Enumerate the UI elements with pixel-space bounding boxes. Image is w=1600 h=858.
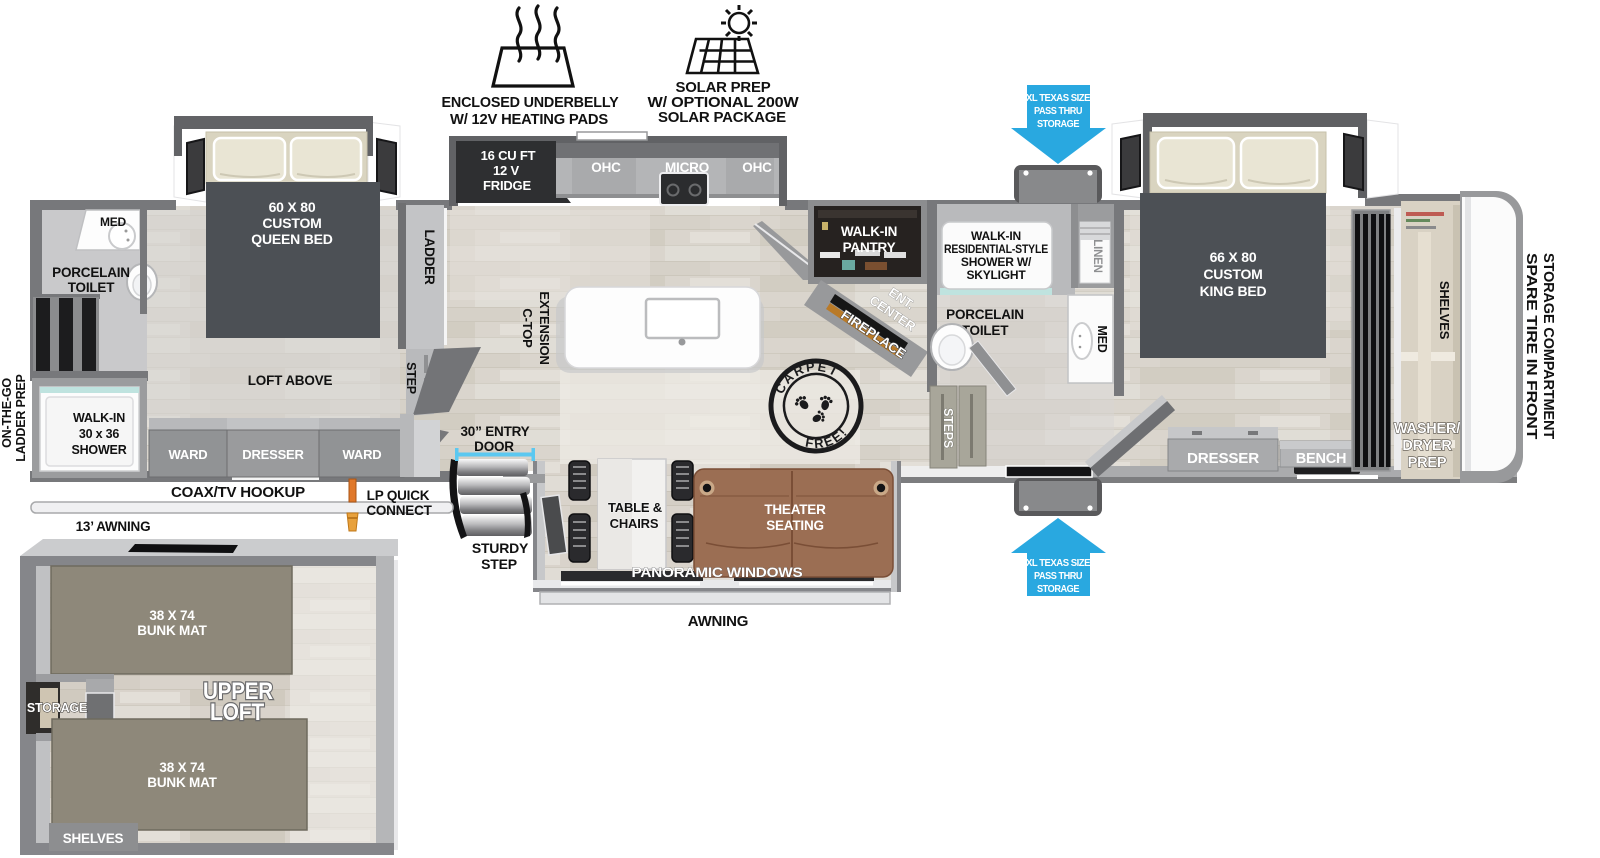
svg-text:WALK-IN: WALK-IN — [73, 411, 125, 425]
svg-text:PORCELAIN: PORCELAIN — [946, 307, 1024, 322]
svg-text:RESIDENTIAL-STYLE: RESIDENTIAL-STYLE — [944, 242, 1048, 256]
svg-text:SPARE TIRE IN FRONT: SPARE TIRE IN FRONT — [1523, 253, 1540, 439]
svg-text:SHELVES: SHELVES — [63, 831, 124, 846]
svg-text:WALK-IN: WALK-IN — [841, 224, 897, 239]
svg-text:AWNING: AWNING — [688, 613, 748, 630]
svg-text:SHOWER W/: SHOWER W/ — [961, 255, 1032, 269]
svg-text:TOILET: TOILET — [68, 280, 116, 295]
svg-text:DRESSER: DRESSER — [1187, 451, 1260, 467]
svg-text:66 X 80: 66 X 80 — [1210, 249, 1257, 265]
svg-text:BENCH: BENCH — [1296, 451, 1347, 467]
svg-text:PASS THRU: PASS THRU — [1034, 106, 1082, 117]
svg-text:STORAGE: STORAGE — [27, 701, 87, 715]
svg-text:OHC: OHC — [591, 160, 621, 175]
svg-text:30 x 36: 30 x 36 — [79, 427, 120, 441]
svg-text:38 X 74: 38 X 74 — [149, 608, 195, 623]
svg-text:QUEEN BED: QUEEN BED — [251, 231, 333, 247]
svg-text:WARD: WARD — [169, 447, 208, 462]
svg-text:WASHER/: WASHER/ — [1394, 421, 1460, 437]
svg-text:CHAIRS: CHAIRS — [610, 516, 659, 531]
svg-text:MED: MED — [100, 215, 127, 229]
svg-text:STEP: STEP — [481, 556, 517, 572]
svg-text:WARD: WARD — [343, 447, 382, 462]
svg-text:XL TEXAS SIZE: XL TEXAS SIZE — [1026, 558, 1091, 569]
svg-text:C-TOP: C-TOP — [520, 308, 535, 348]
svg-text:LADDER PREP: LADDER PREP — [14, 374, 28, 461]
svg-text:OHC: OHC — [742, 160, 772, 175]
svg-text:DOOR: DOOR — [474, 439, 514, 454]
svg-text:TABLE &: TABLE & — [608, 500, 662, 515]
svg-text:STEP: STEP — [404, 362, 418, 394]
svg-text:ENCLOSED UNDERBELLY: ENCLOSED UNDERBELLY — [442, 94, 619, 111]
svg-text:FRIDGE: FRIDGE — [483, 178, 531, 193]
svg-text:PASS THRU: PASS THRU — [1034, 571, 1082, 582]
svg-text:EXTENSION: EXTENSION — [537, 291, 552, 364]
svg-text:STEPS: STEPS — [941, 408, 955, 448]
svg-text:CUSTOM: CUSTOM — [1203, 266, 1262, 282]
svg-text:LINEN: LINEN — [1091, 239, 1103, 273]
svg-text:SEATING: SEATING — [766, 518, 824, 533]
svg-text:SHELVES: SHELVES — [1437, 281, 1452, 340]
svg-text:STURDY: STURDY — [472, 540, 529, 556]
svg-text:60 X 80: 60 X 80 — [269, 199, 316, 215]
svg-text:16 CU FT: 16 CU FT — [481, 148, 536, 163]
svg-text:COAX/TV HOOKUP: COAX/TV HOOKUP — [171, 485, 306, 501]
svg-text:30” ENTRY: 30” ENTRY — [461, 424, 530, 439]
svg-text:PANORAMIC WINDOWS: PANORAMIC WINDOWS — [632, 565, 803, 580]
svg-text:XL TEXAS SIZE: XL TEXAS SIZE — [1026, 93, 1091, 104]
svg-text:LOFT: LOFT — [210, 699, 264, 726]
svg-text:W/ 12V HEATING PADS: W/ 12V HEATING PADS — [450, 111, 608, 128]
svg-text:PORCELAIN: PORCELAIN — [52, 265, 130, 280]
svg-text:SKYLIGHT: SKYLIGHT — [966, 268, 1026, 282]
svg-text:KING BED: KING BED — [1200, 283, 1267, 299]
svg-text:STORAGE: STORAGE — [1037, 584, 1080, 595]
svg-text:13’ AWNING: 13’ AWNING — [76, 519, 151, 534]
svg-text:THEATER: THEATER — [764, 502, 826, 517]
svg-text:BUNK MAT: BUNK MAT — [147, 775, 217, 790]
svg-text:WALK-IN: WALK-IN — [971, 229, 1021, 243]
svg-text:PREP: PREP — [1408, 455, 1447, 471]
svg-text:MED: MED — [1095, 325, 1109, 352]
svg-text:38 X 74: 38 X 74 — [159, 760, 205, 775]
svg-text:LADDER: LADDER — [422, 229, 437, 284]
svg-text:STORAGE COMPARTMENT: STORAGE COMPARTMENT — [1540, 253, 1557, 439]
svg-text:BUNK MAT: BUNK MAT — [137, 623, 207, 638]
svg-text:12 V: 12 V — [493, 163, 519, 178]
svg-text:LOFT ABOVE: LOFT ABOVE — [248, 373, 333, 388]
svg-text:DRYER: DRYER — [1402, 438, 1452, 454]
svg-text:LP QUICK: LP QUICK — [367, 488, 430, 503]
svg-text:ON-THE-GO: ON-THE-GO — [0, 378, 14, 448]
svg-text:CUSTOM: CUSTOM — [262, 215, 321, 231]
svg-text:DRESSER: DRESSER — [242, 447, 304, 462]
svg-text:STORAGE: STORAGE — [1037, 119, 1080, 130]
svg-text:PANTRY: PANTRY — [843, 240, 896, 255]
svg-text:SOLAR PACKAGE: SOLAR PACKAGE — [658, 109, 786, 126]
svg-text:CONNECT: CONNECT — [366, 503, 432, 518]
svg-text:SHOWER: SHOWER — [71, 443, 126, 457]
